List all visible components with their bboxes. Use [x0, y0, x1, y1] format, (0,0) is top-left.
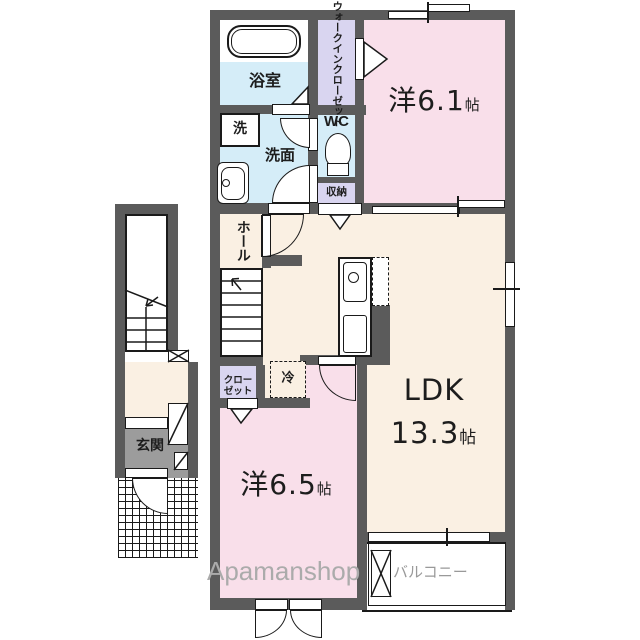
- sliding-door-high: [458, 200, 505, 208]
- wall-segment: [370, 305, 390, 357]
- storage-label: 収納: [318, 183, 355, 202]
- walkin-closet-label: ウォークインクローゼット: [319, 23, 355, 105]
- fridge-label: 冷: [281, 372, 294, 386]
- bathtub-inner-line: [231, 29, 297, 54]
- bedroom-6_1-label: 洋6.1帖: [364, 86, 505, 134]
- french-door-swing-right: [290, 610, 322, 638]
- washbasin-faucet: [222, 179, 230, 187]
- annex-staircase: [125, 214, 168, 352]
- washroom-door-gap: [268, 203, 310, 214]
- sliding-door-low: [372, 206, 460, 214]
- annex-window: [168, 350, 189, 362]
- bedroom-6_5-label: 洋6.5帖: [216, 470, 357, 518]
- wall-segment: [168, 214, 178, 354]
- french-door-leaf-right: [289, 599, 322, 610]
- balcony-door-tick: [446, 528, 448, 546]
- window-top: [388, 11, 428, 19]
- french-door-leaf-left: [255, 599, 288, 610]
- window-top2: [428, 4, 470, 12]
- window-right-tick: [493, 288, 520, 290]
- balcony-door: [368, 532, 490, 542]
- kitchen-open-counter: [372, 257, 389, 306]
- entrance-door-leaf: [125, 468, 168, 478]
- inner-staircase: [220, 268, 263, 357]
- kitchen-faucet: [348, 272, 359, 283]
- entrance-label: 玄関: [126, 438, 174, 456]
- entrance-step: [125, 417, 168, 429]
- washroom-label: 洗面: [252, 146, 308, 164]
- shoe-cabinet-small: [174, 452, 188, 470]
- toilet-icon: [325, 133, 351, 167]
- fridge-space: 冷: [270, 361, 306, 398]
- closet-label: クローゼット: [220, 368, 256, 405]
- wall-segment: [188, 362, 198, 478]
- washer-label: 洗: [233, 122, 247, 137]
- watermark: Apamanshop: [207, 557, 407, 585]
- wall-segment: [210, 10, 220, 610]
- floorplan: 洗 冷: [0, 0, 640, 640]
- sliding-door-tick: [457, 196, 459, 217]
- french-door-swing-left: [255, 610, 287, 638]
- washing-machine-icon: 洗: [220, 113, 260, 147]
- hall-label: ホール: [223, 216, 261, 266]
- balcony-label: バルコニー: [393, 561, 497, 583]
- window-top-tick: [427, 2, 429, 23]
- window-right: [505, 262, 515, 327]
- ldk-size-label: 13.3帖: [365, 418, 503, 464]
- kitchen-stove: [343, 315, 367, 353]
- wic-door-leaf: [355, 38, 364, 80]
- wall-segment: [115, 204, 125, 478]
- toilet-tank: [327, 163, 349, 176]
- ldk-label: LDK: [365, 370, 503, 412]
- bathroom-label: 浴室: [236, 71, 294, 91]
- bath-door: [272, 104, 310, 115]
- storage-door-gap: [318, 203, 362, 215]
- bedroom-6_5-door-leaf: [318, 356, 356, 365]
